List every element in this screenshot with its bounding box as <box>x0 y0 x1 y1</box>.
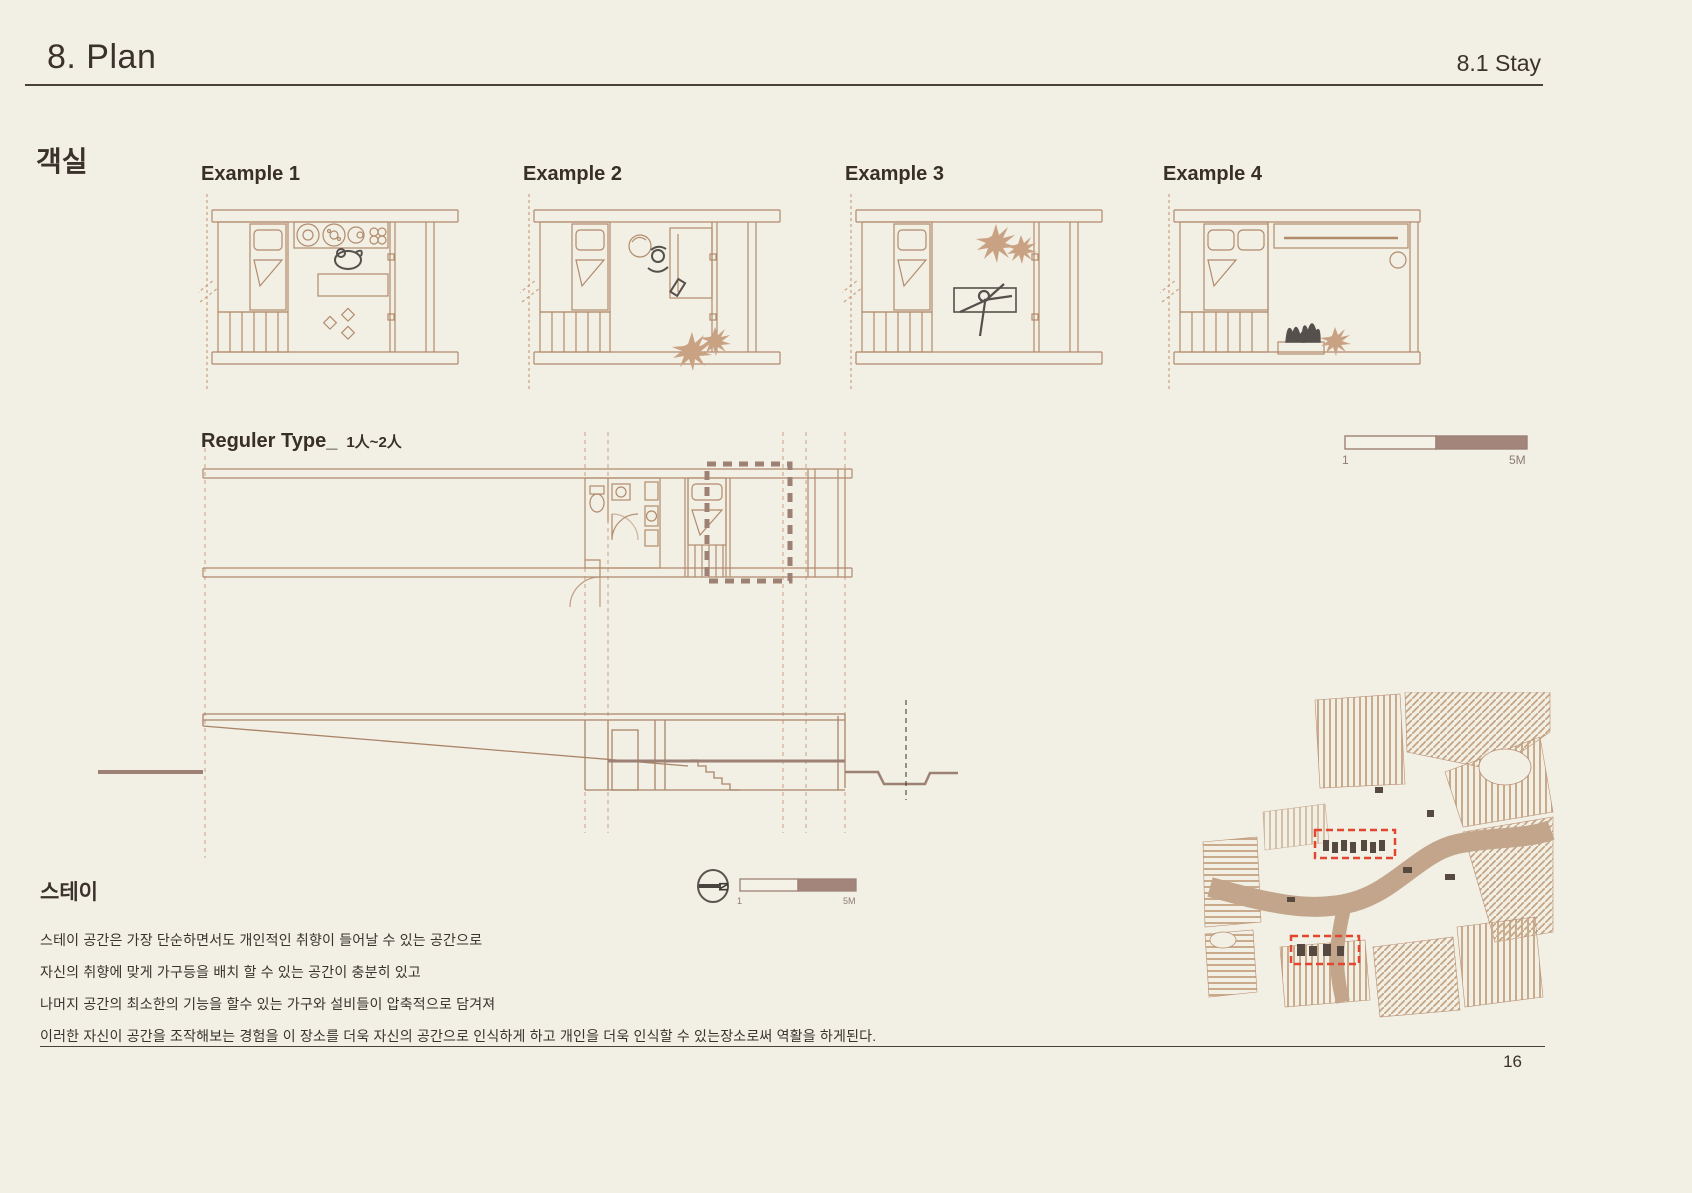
scale-bar-top: 1 5M <box>1330 430 1550 472</box>
header: 8. Plan 8.1 Stay <box>25 38 1543 86</box>
regular-type-plan-and-section <box>80 425 980 870</box>
scale-bar-mid: 1 5M <box>737 879 856 906</box>
example-1-floorplan <box>198 194 500 392</box>
guestroom-heading: 객실 <box>36 140 88 180</box>
stay-paragraph-3: 나머지 공간의 최소한의 기능을 할수 있는 가구와 설비들이 압축적으로 담겨… <box>40 994 495 1014</box>
example-4-label: Example 4 <box>1163 163 1262 186</box>
stay-paragraph-1: 스테이 공간은 가장 단순하면서도 개인적인 취향이 들어날 수 있는 공간으로 <box>40 930 482 950</box>
page-subtitle: 8.1 Stay <box>1457 50 1543 77</box>
example-3-label: Example 3 <box>845 163 944 186</box>
example-2-floorplan <box>520 194 822 392</box>
presentation-slide: 8. Plan 8.1 Stay 객실 Example 1 Example 2 … <box>0 0 1692 1193</box>
unit-section-drawing <box>98 700 958 800</box>
svg-text:N: N <box>716 882 731 891</box>
example-3-floorplan <box>842 194 1144 392</box>
example-2-label: Example 2 <box>523 163 622 186</box>
north-arrow-icon: N <box>698 870 731 902</box>
site-plan-map <box>1195 692 1555 1027</box>
footer-rule <box>40 1046 1545 1047</box>
stay-paragraph-4: 이러한 자신이 공간을 조작해보는 경험을 이 장소를 더욱 자신의 공간으로 … <box>40 1026 876 1046</box>
guide-lines <box>205 432 845 858</box>
scale-start-label: 1 <box>737 896 742 906</box>
page-number: 16 <box>1482 1052 1522 1072</box>
example-4-floorplan <box>1160 194 1462 392</box>
compass-and-scale: N 1 5M <box>680 860 880 915</box>
scale-end-label: 5M <box>1509 453 1526 467</box>
scale-start-label: 1 <box>1342 453 1349 467</box>
scale-end-label: 5M <box>843 896 856 906</box>
unit-plan-drawing <box>203 469 852 607</box>
site-pond-small <box>1210 932 1236 948</box>
stay-heading: 스테이 <box>40 876 98 906</box>
stay-paragraph-2: 자신의 취향에 맞게 가구등을 배치 할 수 있는 공간이 충분히 있고 <box>40 962 421 982</box>
unit-highlight-dashed-box <box>707 464 790 581</box>
example-1-label: Example 1 <box>201 163 300 186</box>
page-title: 8. Plan <box>47 38 156 77</box>
site-pond <box>1479 749 1531 785</box>
